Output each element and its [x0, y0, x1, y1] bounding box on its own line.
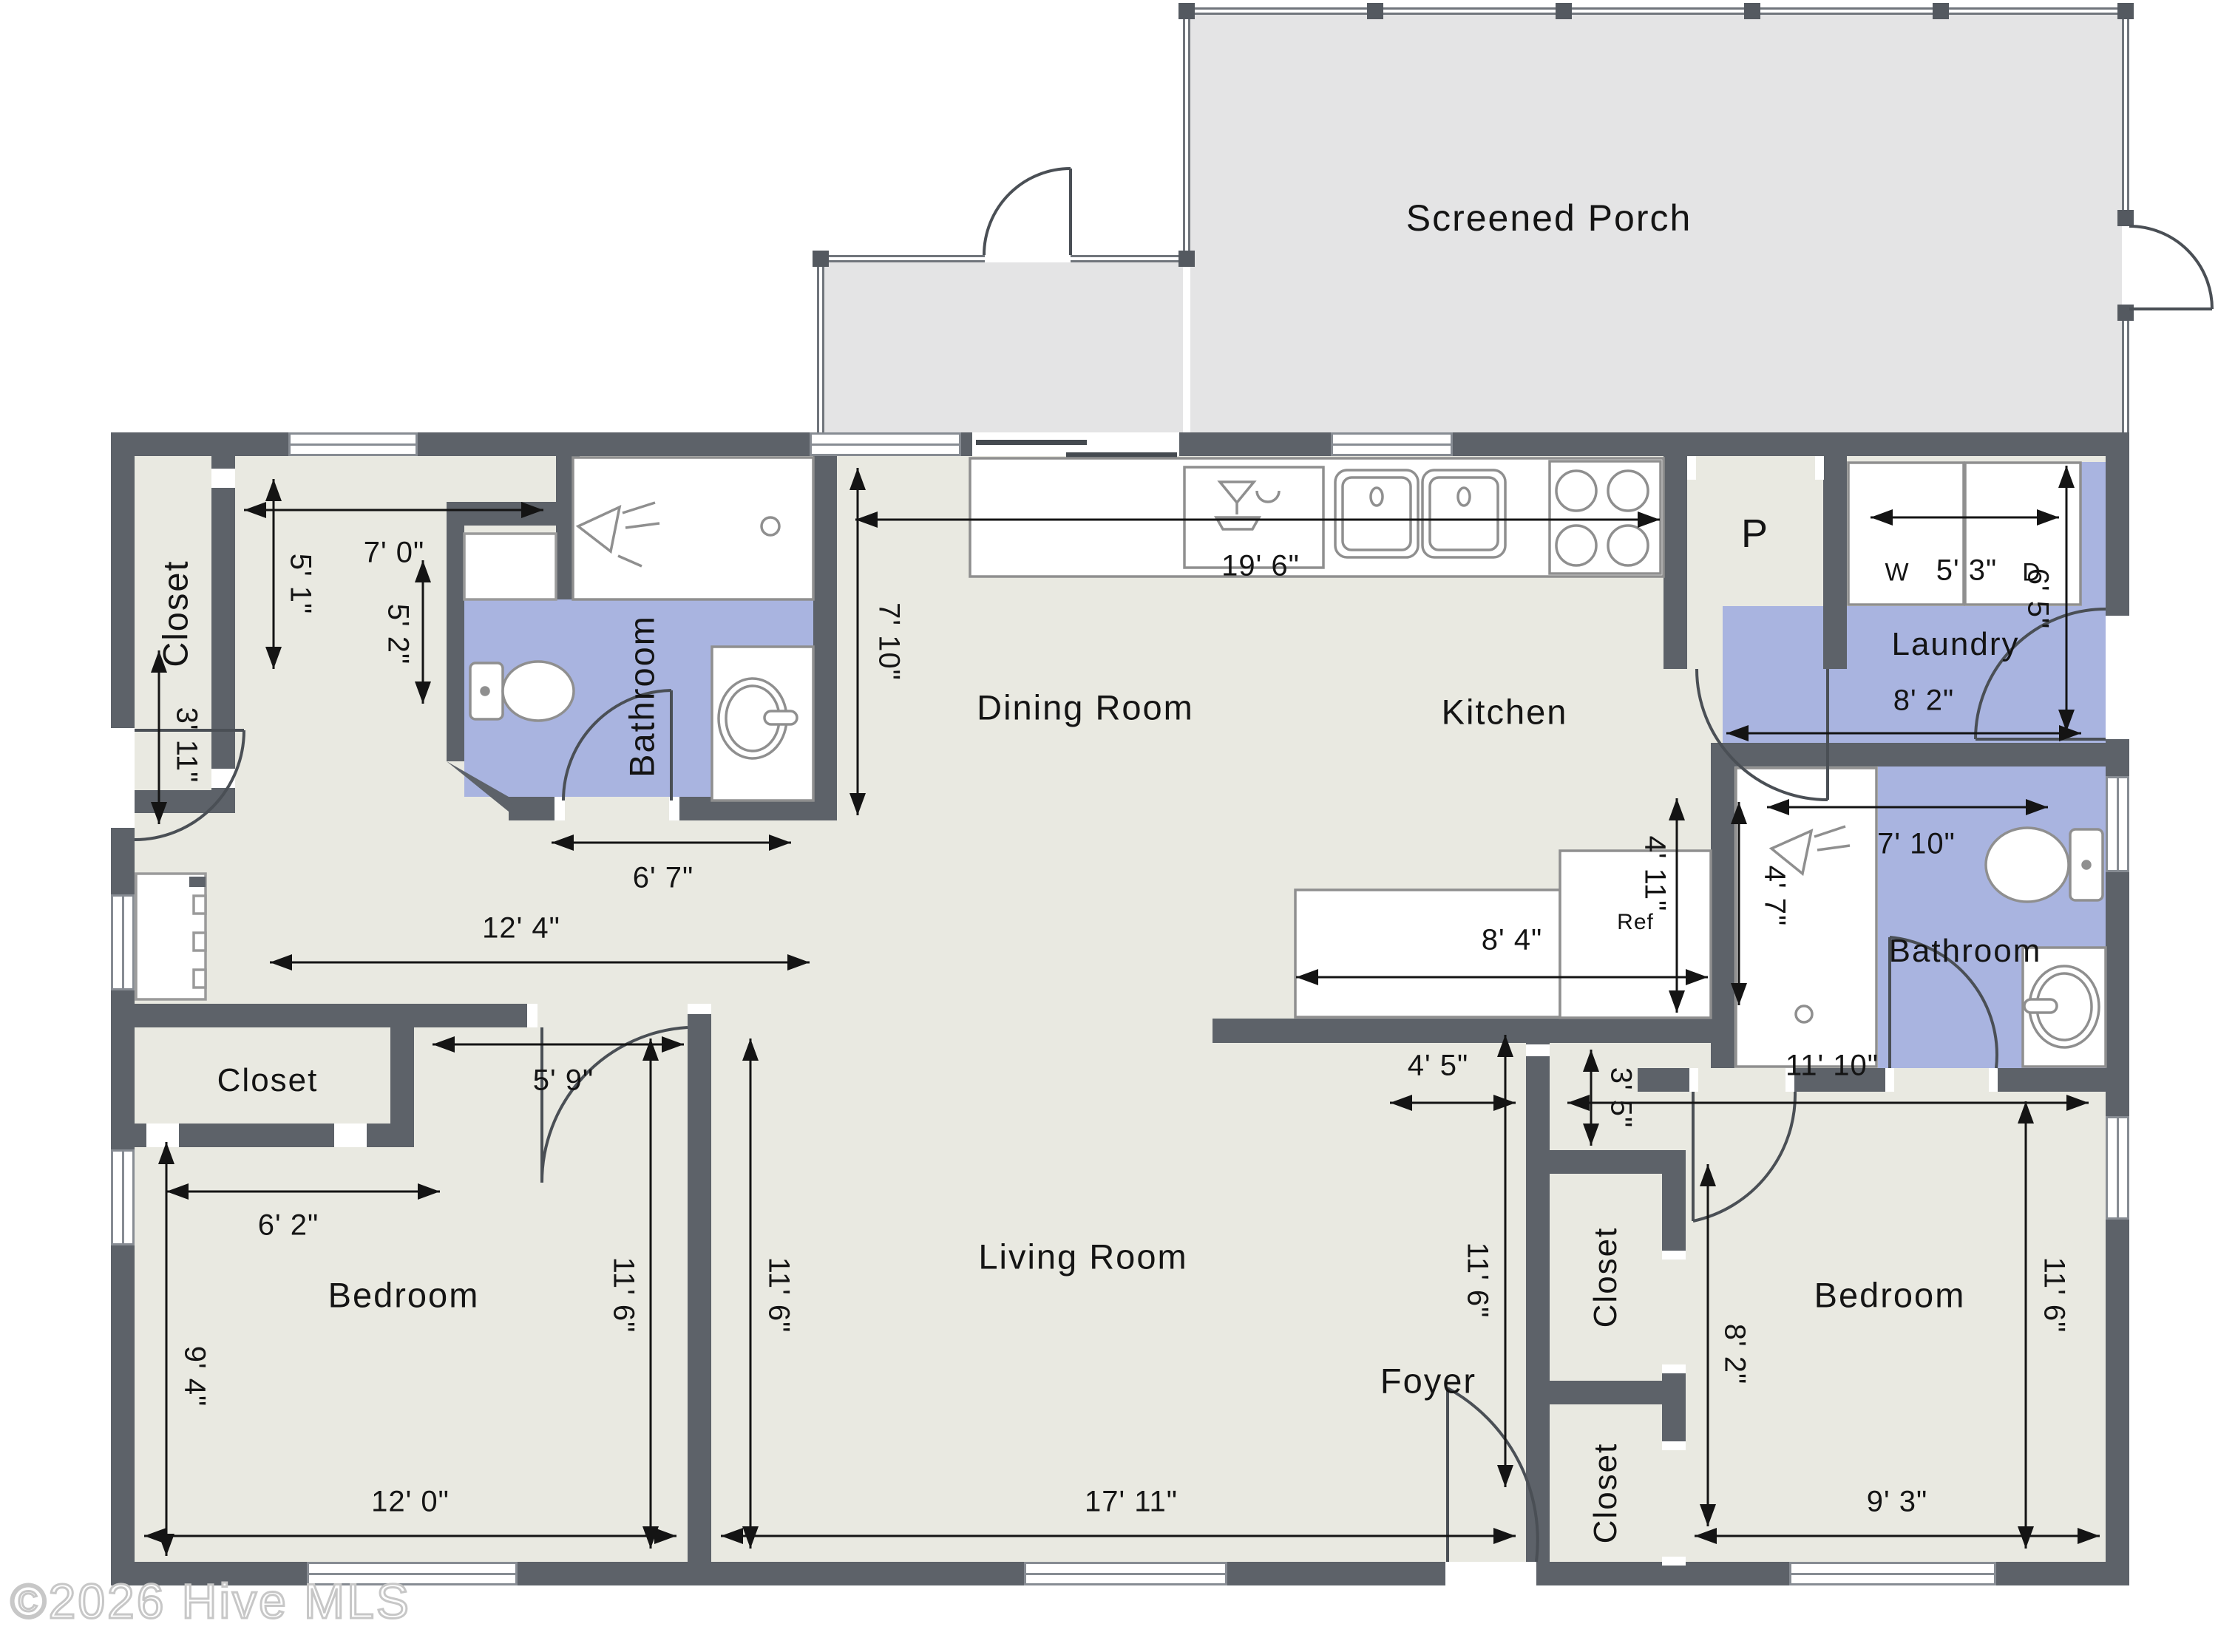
appliance-label-washer: W	[1885, 559, 1909, 588]
dim-living-height-left: 11' 6"	[762, 1257, 796, 1333]
bedroom-left-door	[542, 1027, 688, 1183]
faucet-right	[2024, 999, 2057, 1013]
dim-bath-left-depth: 5' 2"	[381, 604, 415, 664]
room-label-closet-right-upper: Closet	[1587, 1227, 1624, 1328]
dim-shower-right-depth: 4' 7"	[1758, 866, 1791, 926]
room-label-bathroom-right: Bathroom	[1889, 933, 2042, 970]
dim-bedroom-left-depth: 9' 4"	[178, 1346, 211, 1407]
watermark: ©2026 Hive MLS	[10, 1573, 411, 1629]
toilet-left-bowl	[503, 662, 574, 721]
floor-plan: Screened Porch Closet 7' 0" 5' 1" 5' 2" …	[0, 0, 2218, 1652]
doors	[135, 169, 2212, 1562]
room-label-laundry: Laundry	[1891, 626, 2019, 663]
room-label-bedroom-right: Bedroom	[1814, 1275, 1966, 1316]
appliance-label-refrigerator: Ref	[1617, 910, 1654, 935]
room-label-screened-porch: Screened Porch	[1406, 197, 1692, 239]
dim-bedroom-left-height: 11' 6"	[607, 1257, 640, 1333]
kitchen-sink-2	[1422, 470, 1505, 557]
dim-hall-right-opening: 4' 5"	[1408, 1050, 1468, 1083]
dim-counter-width: 8' 4"	[1482, 924, 1542, 957]
dim-bedroom-left-door-wall: 5' 9"	[533, 1064, 594, 1098]
plan-overlay	[0, 0, 2218, 1652]
dim-dining-depth: 7' 10"	[872, 602, 906, 681]
dim-living-height-right: 11' 6"	[1461, 1243, 1494, 1319]
fixtures	[136, 458, 2106, 1067]
room-label-bathroom-left: Bathroom	[622, 615, 662, 778]
room-label-kitchen: Kitchen	[1442, 692, 1568, 732]
dim-hall-left-width: 12' 4"	[482, 912, 560, 945]
dim-closet-tl-width: 7' 0"	[364, 537, 424, 570]
room-label-foyer: Foyer	[1380, 1361, 1476, 1401]
toilet-right-bowl	[1986, 828, 2069, 902]
dim-closet-tl-depth: 5' 1"	[284, 554, 317, 614]
dim-side-door: 3' 11"	[170, 707, 203, 783]
dim-bedroom-right-height: 11' 6"	[2038, 1257, 2071, 1333]
dim-counter-depth: 4' 11"	[1638, 836, 1672, 912]
room-label-closet-right-lower: Closet	[1587, 1443, 1624, 1544]
dim-bedroom-left-width: 12' 0"	[371, 1486, 450, 1519]
room-label-living: Living Room	[978, 1237, 1187, 1277]
dim-bath-right-width: 7' 10"	[1877, 828, 1956, 861]
shower-left	[573, 458, 813, 599]
room-label-dining: Dining Room	[977, 687, 1194, 728]
door-sills	[146, 456, 1998, 1566]
dim-bedroom-right-closet-depth: 8' 2"	[1718, 1324, 1751, 1384]
room-label-closet-mid: Closet	[217, 1062, 319, 1099]
dim-closet-mid-width: 6' 2"	[258, 1209, 319, 1243]
dim-wd-width: 5' 3"	[1936, 554, 1997, 588]
kitchen-sink-1	[1335, 470, 1418, 557]
angled-wall	[447, 761, 518, 820]
dim-kitchen-run: 19' 6"	[1221, 550, 1300, 583]
faucet-left	[764, 711, 797, 724]
dim-laundry-depth: 6' 5"	[2021, 568, 2055, 629]
room-label-bedroom-left: Bedroom	[328, 1275, 480, 1316]
room-label-pantry: P	[1741, 511, 1769, 557]
dim-bedroom-right-width: 9' 3"	[1867, 1486, 1927, 1519]
dim-hall-right-jog: 3' 5"	[1604, 1067, 1638, 1128]
dim-bath-left-width: 6' 7"	[633, 862, 693, 895]
bath-left-niche	[464, 534, 556, 599]
dim-hall-right-width: 11' 10"	[1785, 1050, 1879, 1083]
dim-living-width: 17' 11"	[1085, 1486, 1178, 1519]
porch-exterior-door	[2129, 226, 2212, 309]
porch-interior-door	[984, 169, 1071, 255]
dim-laundry-width: 8' 2"	[1893, 684, 1954, 718]
room-label-closet-top-left: Closet	[155, 560, 196, 667]
